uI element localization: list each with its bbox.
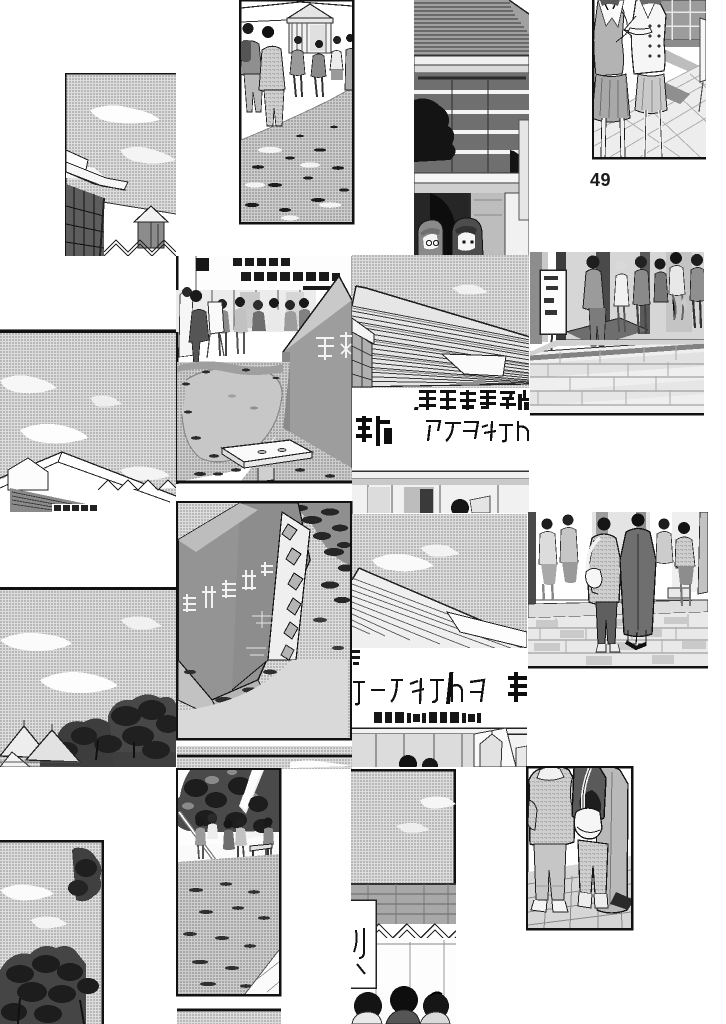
svg-text:49: 49 [590, 170, 611, 190]
